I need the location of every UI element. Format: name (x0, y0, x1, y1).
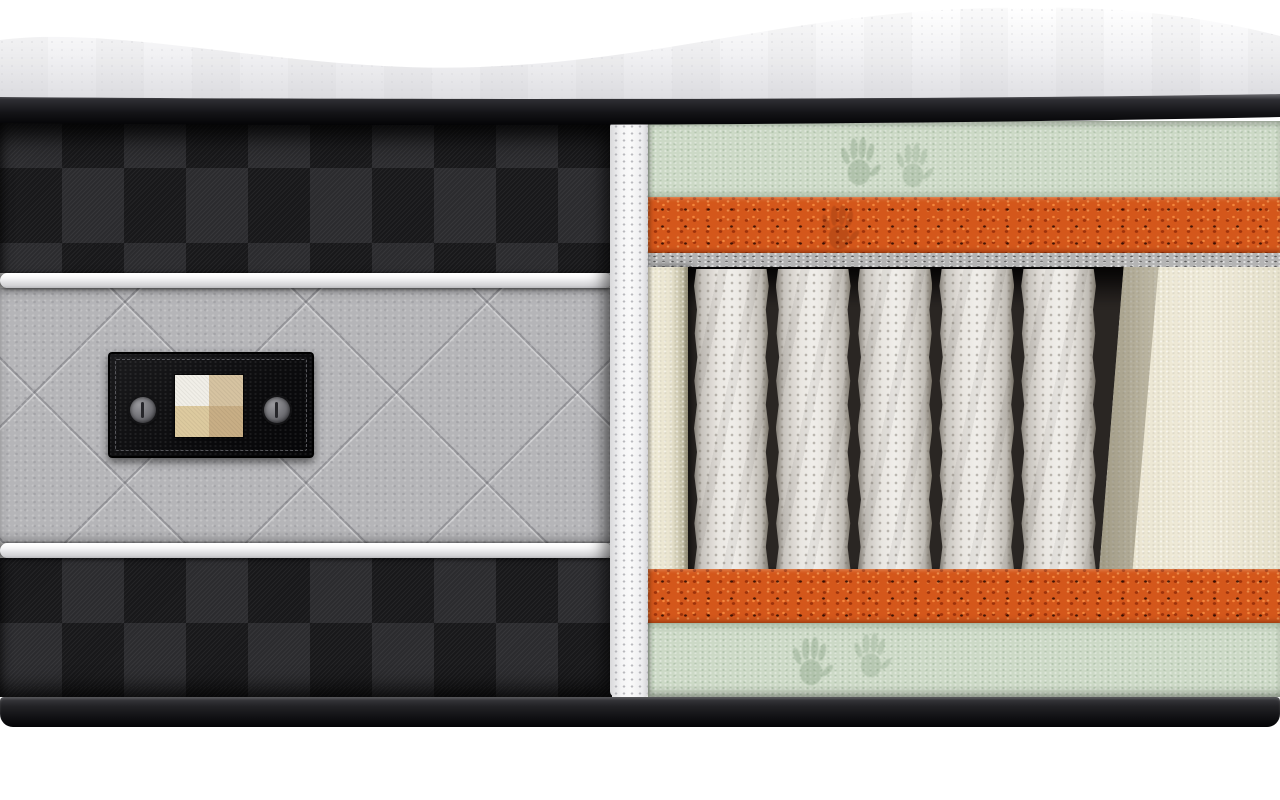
mattress-base (0, 697, 1280, 727)
quilted-top-cover (0, 0, 1280, 132)
support-foam-orange-bottom (648, 569, 1280, 623)
pocket-spring (858, 269, 933, 608)
foam-encasement-left (648, 267, 688, 610)
cut-edge-fabric-strip (610, 121, 648, 697)
checker-fabric-bottom (0, 558, 612, 697)
pocket-spring (939, 269, 1014, 608)
top-cover-fabric (0, 7, 1280, 99)
handprint-mark (892, 141, 934, 189)
swatch-cell (209, 406, 243, 437)
mattress-cutaway-render (0, 0, 1280, 800)
handprint-mark (818, 203, 860, 251)
memory-foam-green-bottom (648, 623, 1280, 697)
gray-quilted-band (0, 288, 612, 543)
white-piping-lower (0, 543, 612, 558)
handprint-mark (850, 631, 892, 679)
checker-fabric-top (0, 121, 612, 273)
label-swatch (175, 375, 243, 437)
mattress-body (0, 121, 1280, 697)
handprint-mark (788, 635, 834, 687)
pocket-spring (1021, 269, 1096, 608)
spring-cavity (648, 267, 1280, 610)
handprint-mark (836, 135, 882, 187)
pocket-spring (776, 269, 851, 608)
swatch-cell (209, 375, 243, 406)
label-button-right (264, 397, 290, 423)
side-panel-left (0, 121, 612, 697)
support-foam-orange-top (648, 197, 1280, 253)
foam-encasement-right (1096, 267, 1280, 610)
cross-section (648, 121, 1280, 697)
brand-label (108, 352, 314, 458)
swatch-cell (175, 406, 209, 437)
pocket-springs (694, 269, 1096, 608)
memory-foam-green-top (648, 121, 1280, 197)
swatch-cell (175, 375, 209, 406)
pocket-spring (694, 269, 769, 608)
white-piping-upper (0, 273, 612, 288)
label-button-left (130, 397, 156, 423)
felt-pad-top (648, 253, 1280, 267)
